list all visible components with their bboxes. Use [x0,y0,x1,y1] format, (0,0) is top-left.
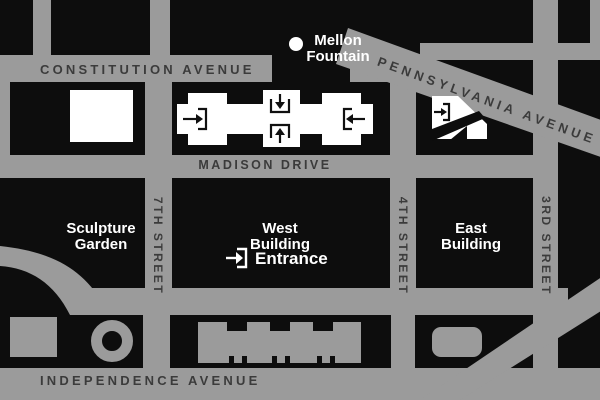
nw-building-footprint [70,90,133,142]
independence-avenue-label: INDEPENDENCE AVENUE [40,373,260,388]
madison-drive-label: MADISON DRIVE [190,158,340,172]
mellon-fountain-label: MellonFountain [278,2,398,95]
square-building-footprint [10,317,57,357]
constitution-avenue-label: CONSTITUTION AVENUE [40,62,255,77]
rounded-building-footprint [432,327,482,357]
entrance-label: Entrance [255,249,328,269]
block-nw-2 [51,0,150,55]
east-building-label: EastBuilding [401,190,541,283]
national-gallery-area-map: MellonFountain CONSTITUTION AVENUE PENNS… [0,0,600,400]
west-building-label: WestBuilding [210,190,350,283]
sculpture-garden-label: SculptureGarden [31,190,171,283]
block-ne-1 [420,0,533,43]
third-street-label: 3RD STREET [539,181,553,311]
block-ne-2 [558,0,590,43]
block-nw-1 [0,0,33,55]
